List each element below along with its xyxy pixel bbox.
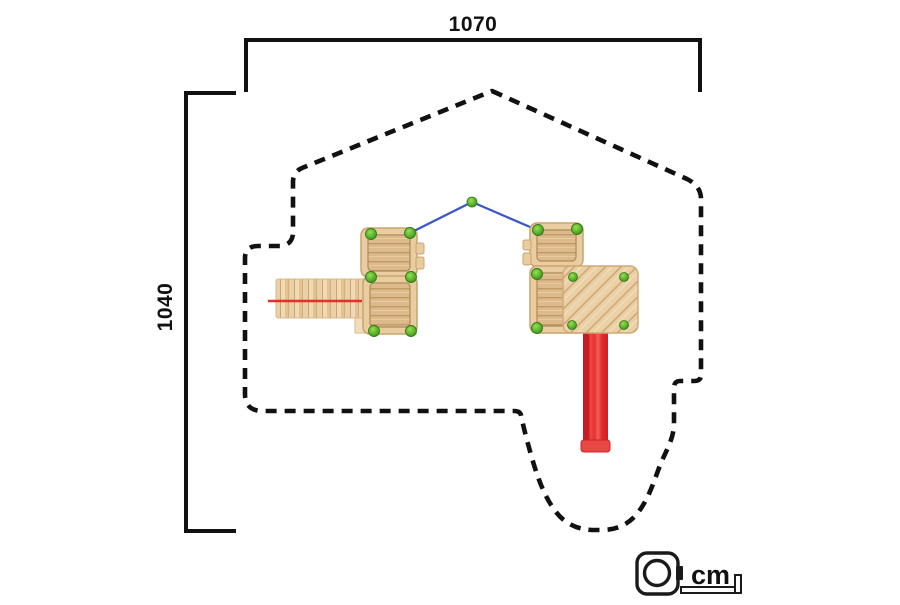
diagonal-post-top-right xyxy=(620,273,629,282)
tape-reel xyxy=(645,561,670,586)
dimension-width-label: 1070 xyxy=(449,13,498,36)
tape-lock-nub xyxy=(676,566,683,580)
dimension-width: 1070 xyxy=(246,13,700,92)
walkway-planks xyxy=(276,279,367,318)
walkway-bridge xyxy=(268,279,367,318)
rope-apex-post xyxy=(467,197,477,207)
dimension-height: 1040 xyxy=(154,93,236,531)
post-cap xyxy=(366,272,377,283)
post-cap xyxy=(572,224,583,235)
dimension-height-label: 1040 xyxy=(154,283,177,332)
post-cap xyxy=(366,229,377,240)
left-tower-tab-1 xyxy=(416,243,424,254)
post-cap xyxy=(532,323,543,334)
left-tower-tab-2 xyxy=(416,257,424,269)
climbing-rope xyxy=(410,197,537,233)
playground-dimension-diagram: 1070 1040 xyxy=(0,0,900,600)
right-upper-platform-deck xyxy=(537,230,576,261)
post-cap xyxy=(406,272,417,283)
left-upper-platform-deck xyxy=(368,235,410,271)
diagonal-post-bottom-right xyxy=(620,321,629,330)
post-cap xyxy=(406,326,417,337)
left-lower-platform-deck xyxy=(370,283,410,327)
dimension-width-bracket xyxy=(246,40,700,92)
slide-end-cap xyxy=(581,440,610,452)
right-tower-tab-2 xyxy=(523,253,531,265)
diagram-svg: 1070 1040 xyxy=(0,0,900,600)
diagonal-platform xyxy=(563,266,638,333)
post-cap xyxy=(405,228,416,239)
post-cap xyxy=(533,225,544,236)
slide-chute xyxy=(583,333,608,445)
right-tower-tab-1 xyxy=(523,240,531,250)
post-cap xyxy=(532,269,543,280)
tape-hook xyxy=(735,575,741,593)
post-cap xyxy=(369,326,380,337)
slide xyxy=(581,333,610,452)
unit-label: cm xyxy=(691,560,730,590)
diagonal-post-bottom-left xyxy=(568,321,577,330)
dimension-height-bracket xyxy=(186,93,236,531)
diagonal-post-top-left xyxy=(569,273,578,282)
scale-legend: cm xyxy=(637,553,741,594)
